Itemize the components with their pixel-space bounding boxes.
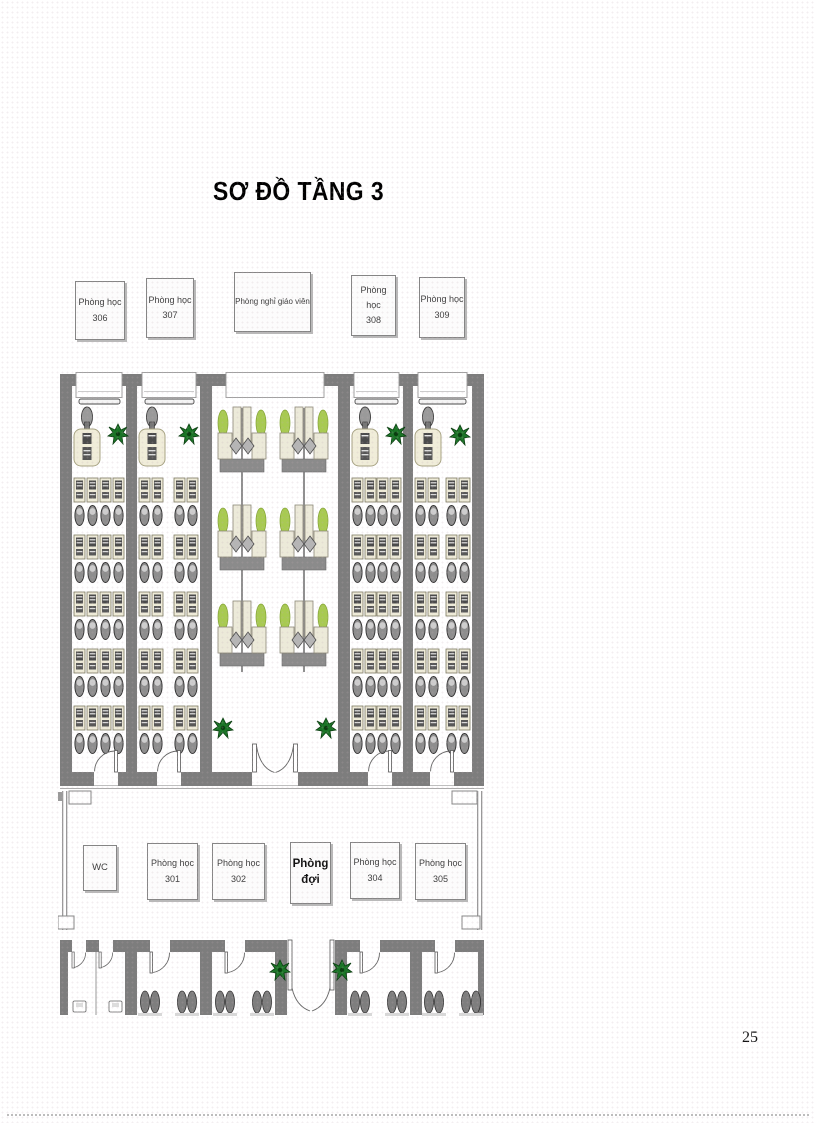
- label-room-307: Phòng học 307: [146, 278, 194, 338]
- lower-block: [60, 940, 484, 1016]
- floor-plan: [58, 372, 488, 1018]
- page-title: SƠ ĐỒ TẦNG 3: [213, 176, 384, 207]
- label-room-301: Phòng học 301: [147, 843, 198, 900]
- label-room-308: Phòng học 308: [351, 275, 396, 336]
- label-waiting-room: Phòng đợi: [290, 842, 331, 904]
- page-number: 25: [742, 1029, 758, 1047]
- footer-dotted-line: [7, 1114, 809, 1116]
- label-room-309: Phòng học 309: [419, 277, 465, 338]
- upper-block: [60, 373, 484, 790]
- label-room-304: Phòng học 304: [350, 842, 400, 899]
- label-wc: WC: [83, 845, 117, 891]
- label-room-302: Phòng học 302: [212, 843, 265, 900]
- document-page: SƠ ĐỒ TẦNG 3: [0, 0, 816, 1123]
- label-room-306: Phòng học 306: [75, 281, 125, 340]
- label-teacher-lounge: Phòng nghỉ giáo viên: [234, 272, 311, 332]
- label-room-305: Phòng học 305: [415, 843, 466, 900]
